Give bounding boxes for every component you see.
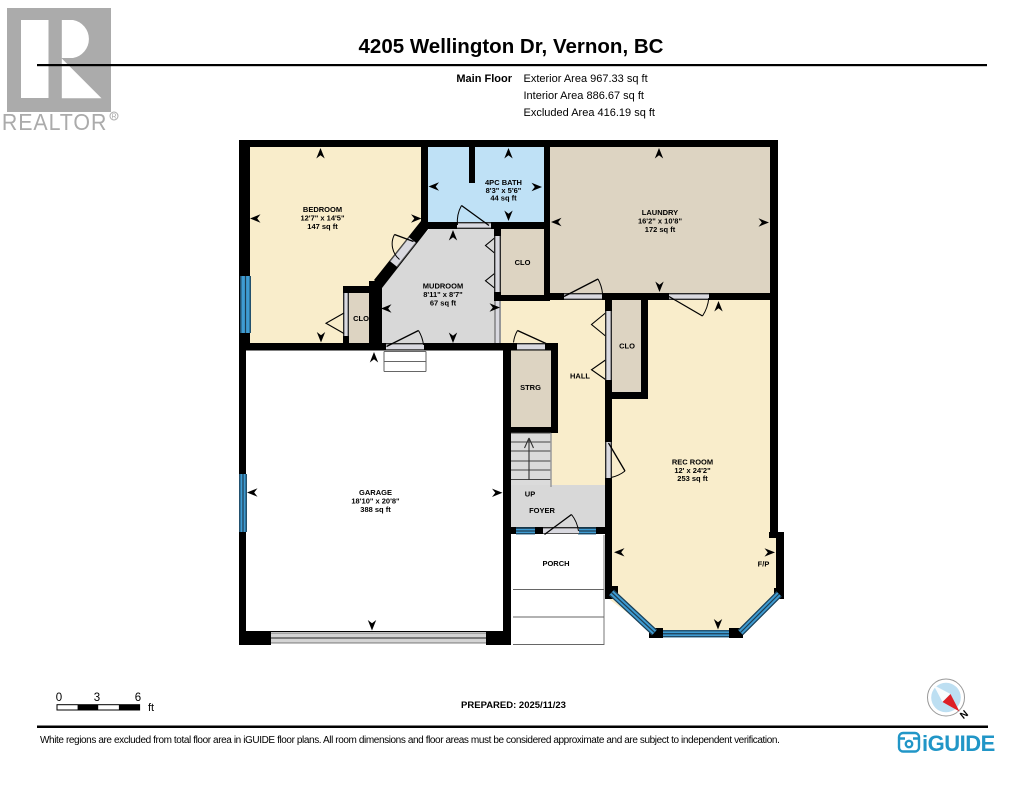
svg-text:388 sq ft: 388 sq ft: [360, 505, 391, 514]
svg-text:253 sq ft: 253 sq ft: [677, 474, 708, 483]
svg-text:FOYER: FOYER: [529, 506, 555, 515]
svg-text:172 sq ft: 172 sq ft: [645, 225, 676, 234]
svg-text:F/P: F/P: [758, 560, 770, 569]
svg-text:CLO: CLO: [515, 258, 531, 267]
svg-text:STRG: STRG: [520, 383, 541, 392]
svg-text:Excluded Area 416.19 sq ft: Excluded Area 416.19 sq ft: [524, 107, 655, 119]
svg-text:CLO: CLO: [353, 314, 369, 323]
svg-text:UP: UP: [525, 490, 535, 499]
svg-text:ft: ft: [148, 702, 154, 714]
svg-text:R: R: [111, 114, 116, 121]
svg-text:Main Floor: Main Floor: [456, 73, 512, 85]
svg-text:iGUIDE: iGUIDE: [922, 731, 995, 756]
svg-text:PREPARED: 2025/11/23: PREPARED: 2025/11/23: [461, 700, 566, 711]
svg-text:67 sq ft: 67 sq ft: [430, 299, 457, 308]
svg-text:CLO: CLO: [619, 342, 635, 351]
svg-text:REALTOR: REALTOR: [2, 109, 107, 135]
svg-text:Exterior Area 967.33 sq ft: Exterior Area 967.33 sq ft: [524, 73, 648, 85]
svg-text:Interior Area 886.67 sq ft: Interior Area 886.67 sq ft: [524, 90, 644, 102]
svg-text:3: 3: [94, 692, 100, 704]
svg-text:44 sq ft: 44 sq ft: [490, 194, 517, 203]
svg-text:N: N: [958, 709, 971, 722]
svg-text:0: 0: [56, 692, 62, 704]
svg-text:HALL: HALL: [570, 371, 590, 380]
svg-text:147 sq ft: 147 sq ft: [307, 222, 338, 231]
svg-text:PORCH: PORCH: [542, 559, 569, 568]
svg-text:4205 Wellington Dr, Vernon, BC: 4205 Wellington Dr, Vernon, BC: [359, 35, 664, 58]
svg-text:6: 6: [135, 692, 141, 704]
svg-text:White regions are excluded fro: White regions are excluded from total fl…: [40, 735, 779, 746]
